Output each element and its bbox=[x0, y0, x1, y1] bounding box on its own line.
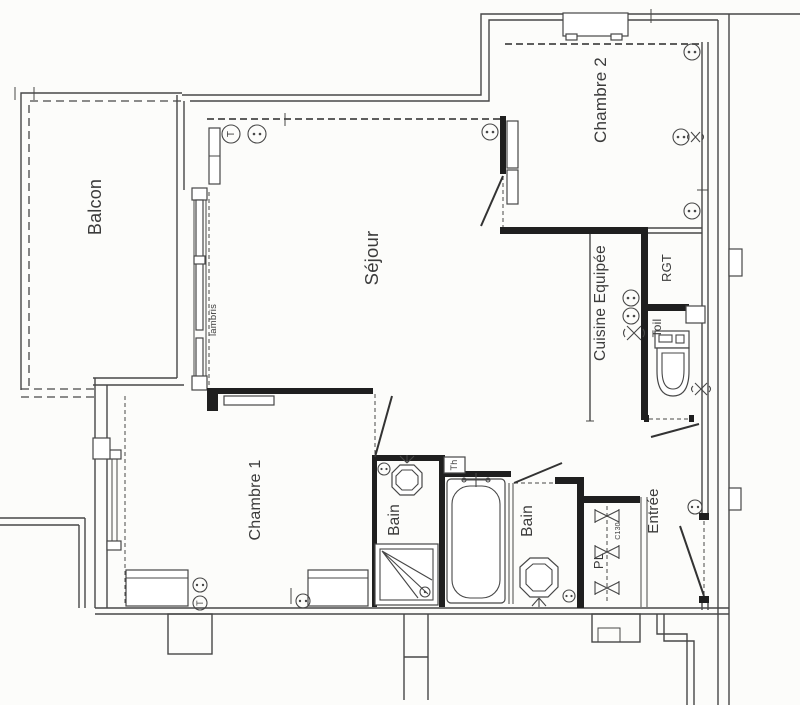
neighbor-wall bbox=[0, 518, 85, 608]
slider-jamb bbox=[192, 188, 207, 200]
door-leaf bbox=[481, 176, 503, 226]
bain1-east-wall bbox=[439, 455, 445, 607]
sejour-west-wall bbox=[177, 95, 184, 378]
wall-pier bbox=[93, 438, 110, 459]
outlet-icon bbox=[688, 500, 702, 514]
outlet-icon bbox=[193, 578, 207, 592]
floor-plan: T T Balcon Séjour lambris Chambre 2 Cuis… bbox=[0, 0, 800, 705]
shaft bbox=[404, 614, 428, 700]
door-jamb bbox=[689, 415, 694, 422]
chambre2-west-wall bbox=[500, 116, 506, 174]
radiator bbox=[308, 570, 368, 606]
wall-pilaster bbox=[729, 249, 742, 276]
chambre1-north-wall bbox=[207, 388, 373, 394]
door-leaf bbox=[375, 396, 392, 457]
outlet-icon bbox=[563, 590, 575, 602]
corridor-wall bbox=[657, 614, 687, 705]
outer-wall-top-inner bbox=[190, 20, 718, 101]
door-leaf bbox=[514, 463, 562, 483]
radiator bbox=[126, 570, 188, 606]
duct-foot bbox=[611, 34, 622, 40]
wall-pilaster bbox=[729, 488, 741, 510]
room-label-chambre1: Chambre 1 bbox=[247, 460, 264, 541]
room-label-cuisine: Cuisine Equipée bbox=[592, 245, 609, 361]
annotation-closet: PL bbox=[591, 553, 606, 569]
shower-fixture bbox=[375, 544, 438, 605]
radiator bbox=[224, 396, 274, 405]
room-label-balcon: Balcon bbox=[85, 179, 105, 235]
corridor-wall-inner bbox=[664, 614, 694, 705]
slider-handle bbox=[194, 256, 205, 264]
outlet-icon bbox=[482, 124, 498, 140]
duct-foot bbox=[566, 34, 577, 40]
outlet-icon bbox=[248, 125, 266, 143]
rgt-north-wall bbox=[647, 228, 702, 233]
rgt-south-wall bbox=[647, 304, 689, 311]
bain2-wall-stub bbox=[555, 477, 580, 484]
toilet-fixture bbox=[655, 331, 689, 396]
balcony-railing bbox=[15, 87, 182, 397]
room-label-chambre2: Chambre 2 bbox=[591, 57, 610, 143]
rgt-shelf bbox=[686, 306, 705, 323]
closet-north-wall bbox=[580, 496, 640, 503]
kitchen-east-wall bbox=[641, 227, 648, 420]
switch-letter: T bbox=[195, 600, 205, 606]
wall-end-block bbox=[207, 388, 218, 411]
apartment-east-wall bbox=[702, 42, 708, 610]
switch-letter: T bbox=[226, 131, 237, 137]
railing-outer bbox=[21, 93, 182, 390]
pier-notch bbox=[598, 628, 620, 642]
tub-deck-line bbox=[509, 483, 513, 604]
door-leaf bbox=[651, 424, 699, 437]
window-glazing bbox=[112, 459, 117, 541]
switch-icon: T bbox=[222, 125, 240, 143]
outer-wall-west bbox=[95, 378, 107, 608]
entrance-door-jamb bbox=[699, 513, 709, 520]
radiator bbox=[209, 128, 220, 184]
sliding-door bbox=[192, 188, 209, 390]
outlet-icon bbox=[623, 290, 639, 306]
washbasin-fixture bbox=[520, 558, 558, 607]
doors bbox=[375, 176, 709, 603]
wall-jog bbox=[93, 378, 184, 385]
duct-block bbox=[563, 13, 628, 36]
annotation-closet-dim: C130 bbox=[615, 522, 622, 540]
room-label-bain2: Bain bbox=[519, 505, 536, 537]
entrance-door-jamb bbox=[699, 596, 709, 603]
floor-plan-drawing: T T Balcon Séjour lambris Chambre 2 Cuis… bbox=[0, 0, 800, 705]
room-label-sejour: Séjour bbox=[361, 231, 382, 286]
slider-glass-panel bbox=[196, 200, 203, 330]
outer-wall-bottom bbox=[95, 608, 729, 614]
bathtub-fixture bbox=[447, 473, 505, 603]
door-jamb bbox=[644, 415, 649, 422]
room-label-rgt: RGT bbox=[659, 254, 674, 282]
outlet-icon bbox=[684, 203, 700, 219]
labels: Balcon Séjour lambris Chambre 2 Cuisine … bbox=[85, 57, 674, 569]
room-label-toil: Toil bbox=[650, 319, 664, 338]
window-jamb bbox=[107, 541, 121, 550]
annotation-lambris: lambris bbox=[208, 304, 219, 336]
chambre2-south-wall bbox=[500, 227, 647, 234]
pier bbox=[168, 614, 212, 654]
wall-light-icon bbox=[688, 132, 704, 142]
outlet-icon bbox=[684, 44, 700, 60]
railing-inner bbox=[29, 101, 182, 386]
outlet-icon bbox=[623, 308, 639, 324]
fixtures bbox=[126, 121, 689, 607]
outlet-icon bbox=[291, 588, 310, 608]
outlet-icon bbox=[673, 129, 689, 145]
annotation-thermostat: Th bbox=[449, 460, 459, 471]
railing-bottom bbox=[21, 389, 95, 397]
outlet-icon bbox=[378, 463, 390, 475]
slider-jamb bbox=[192, 376, 207, 390]
radiator bbox=[507, 121, 518, 204]
room-label-entree: Entrée bbox=[645, 488, 662, 533]
windows bbox=[207, 44, 700, 126]
room-label-bain1: Bain bbox=[386, 504, 403, 536]
entrance-door-leaf bbox=[680, 526, 704, 596]
slider-glass-panel bbox=[196, 338, 203, 382]
